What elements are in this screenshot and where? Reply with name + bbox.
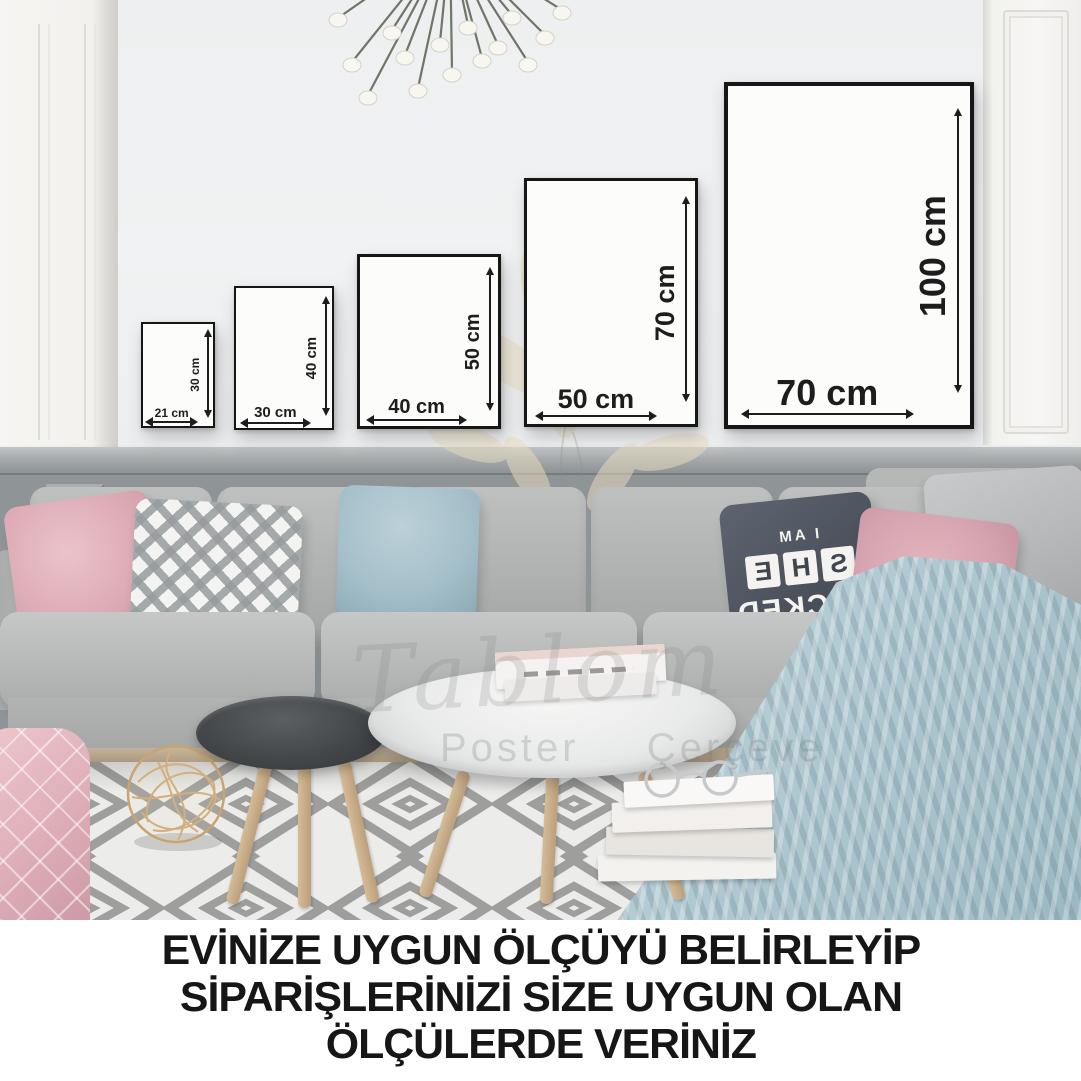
pink-pouf [0, 728, 90, 920]
wall-trim [1003, 10, 1069, 434]
wire-sphere-decor [118, 742, 236, 854]
caption-line-2: SİPARİŞLERİNİZİ SİZE UYGUN OLAN [179, 973, 901, 1020]
pillow-letter-tile: S [821, 545, 857, 581]
books-on-table [495, 644, 668, 707]
caption-line-1: EVİNİZE UYGUN ÖLÇÜYÜ BELİRLEYİP [161, 926, 920, 973]
frame-height-label: 70 cm [652, 264, 679, 341]
frame-height-label: 100 cm [915, 195, 951, 317]
frame-21x30: 30 cm 21 cm [141, 322, 215, 428]
product-image: 30 cm 21 cm 40 cm 30 cm 50 cm 40 cm 70 c… [0, 0, 1081, 1081]
frame-70x100: 100 cm 70 cm [724, 82, 974, 429]
frame-30x40: 40 cm 30 cm [234, 286, 334, 430]
frame-width-label: 30 cm [242, 405, 309, 420]
frame-width-label: 40 cm [368, 397, 465, 417]
chandelier [300, 0, 600, 120]
pillow-letter-tile: E [745, 553, 781, 589]
wall-trim [38, 24, 50, 440]
books-on-rug [598, 772, 778, 902]
wall-panel-left [0, 0, 118, 450]
glasses [624, 758, 774, 800]
blue-pillow [336, 485, 481, 622]
frame-width-label: 70 cm [743, 375, 912, 411]
frame-width-label: 50 cm [537, 386, 655, 413]
living-room-photo: 30 cm 21 cm 40 cm 30 cm 50 cm 40 cm 70 c… [0, 0, 1081, 920]
caption-band: EVİNİZE UYGUN ÖLÇÜYÜ BELİRLEYİP SİPARİŞL… [0, 920, 1081, 1081]
frame-50x70: 70 cm 50 cm [524, 178, 698, 427]
caption-line-3: ÖLÇÜLERDE VERİNİZ [325, 1020, 755, 1067]
pillow-letter-tile: H [783, 549, 819, 585]
frame-width-label: 21 cm [147, 407, 196, 419]
sofa-seat-cushion [0, 612, 315, 708]
frame-height-label: 50 cm [463, 313, 483, 370]
table-leg [298, 762, 311, 908]
frame-40x50: 50 cm 40 cm [357, 254, 501, 429]
frame-height-label: 40 cm [304, 337, 319, 380]
side-table [196, 696, 386, 770]
wall-panel-right [983, 0, 1081, 445]
wall-trim [84, 24, 96, 440]
frame-height-label: 30 cm [189, 358, 201, 392]
pillow-text-top: I AM [775, 525, 820, 546]
